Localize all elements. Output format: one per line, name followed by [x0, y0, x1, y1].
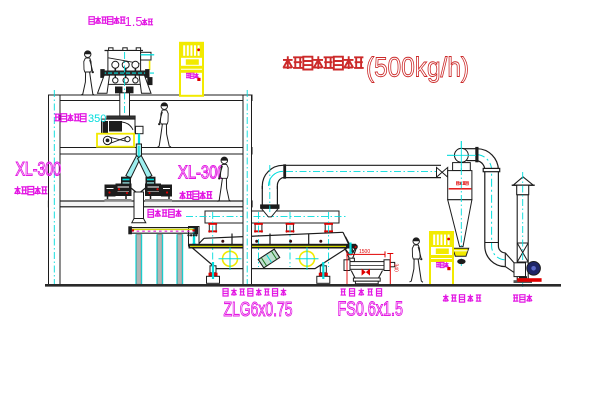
svg-text:XL-300: XL-300	[178, 162, 226, 183]
svg-text:1.5: 1.5	[125, 14, 143, 29]
svg-text:(500kg/h): (500kg/h)	[366, 52, 469, 83]
svg-text:350: 350	[88, 113, 106, 125]
svg-text:FS0.6x1.5: FS0.6x1.5	[338, 298, 404, 321]
svg-text:ZLG6x0.75: ZLG6x0.75	[224, 298, 293, 321]
svg-text:XL-300: XL-300	[16, 159, 62, 181]
svg-text:340: 340	[393, 264, 399, 273]
svg-text:1500: 1500	[359, 249, 370, 255]
